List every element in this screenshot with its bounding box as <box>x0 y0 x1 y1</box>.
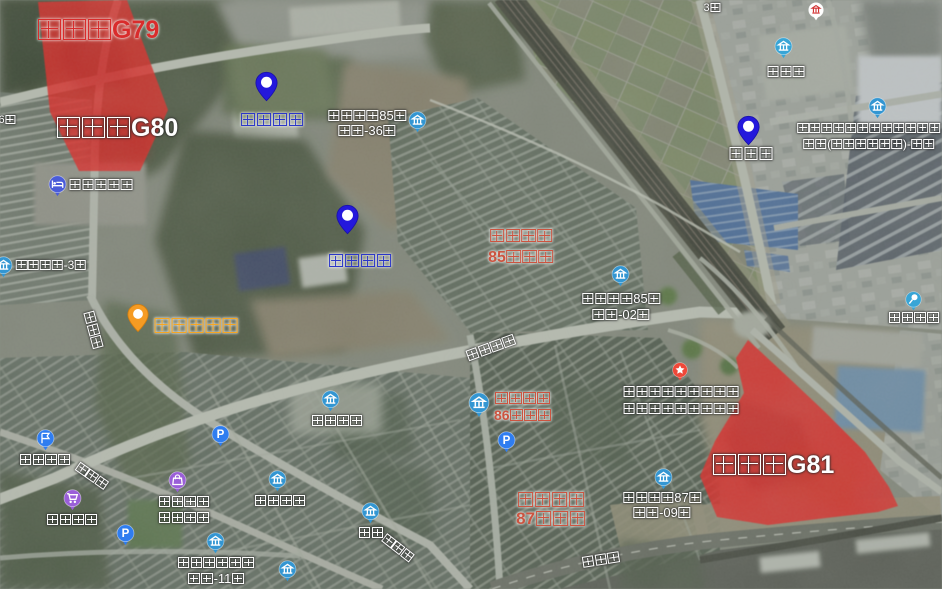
svg-text:P: P <box>503 435 511 447</box>
svg-text:P: P <box>122 528 130 540</box>
svg-text:P: P <box>217 429 225 441</box>
